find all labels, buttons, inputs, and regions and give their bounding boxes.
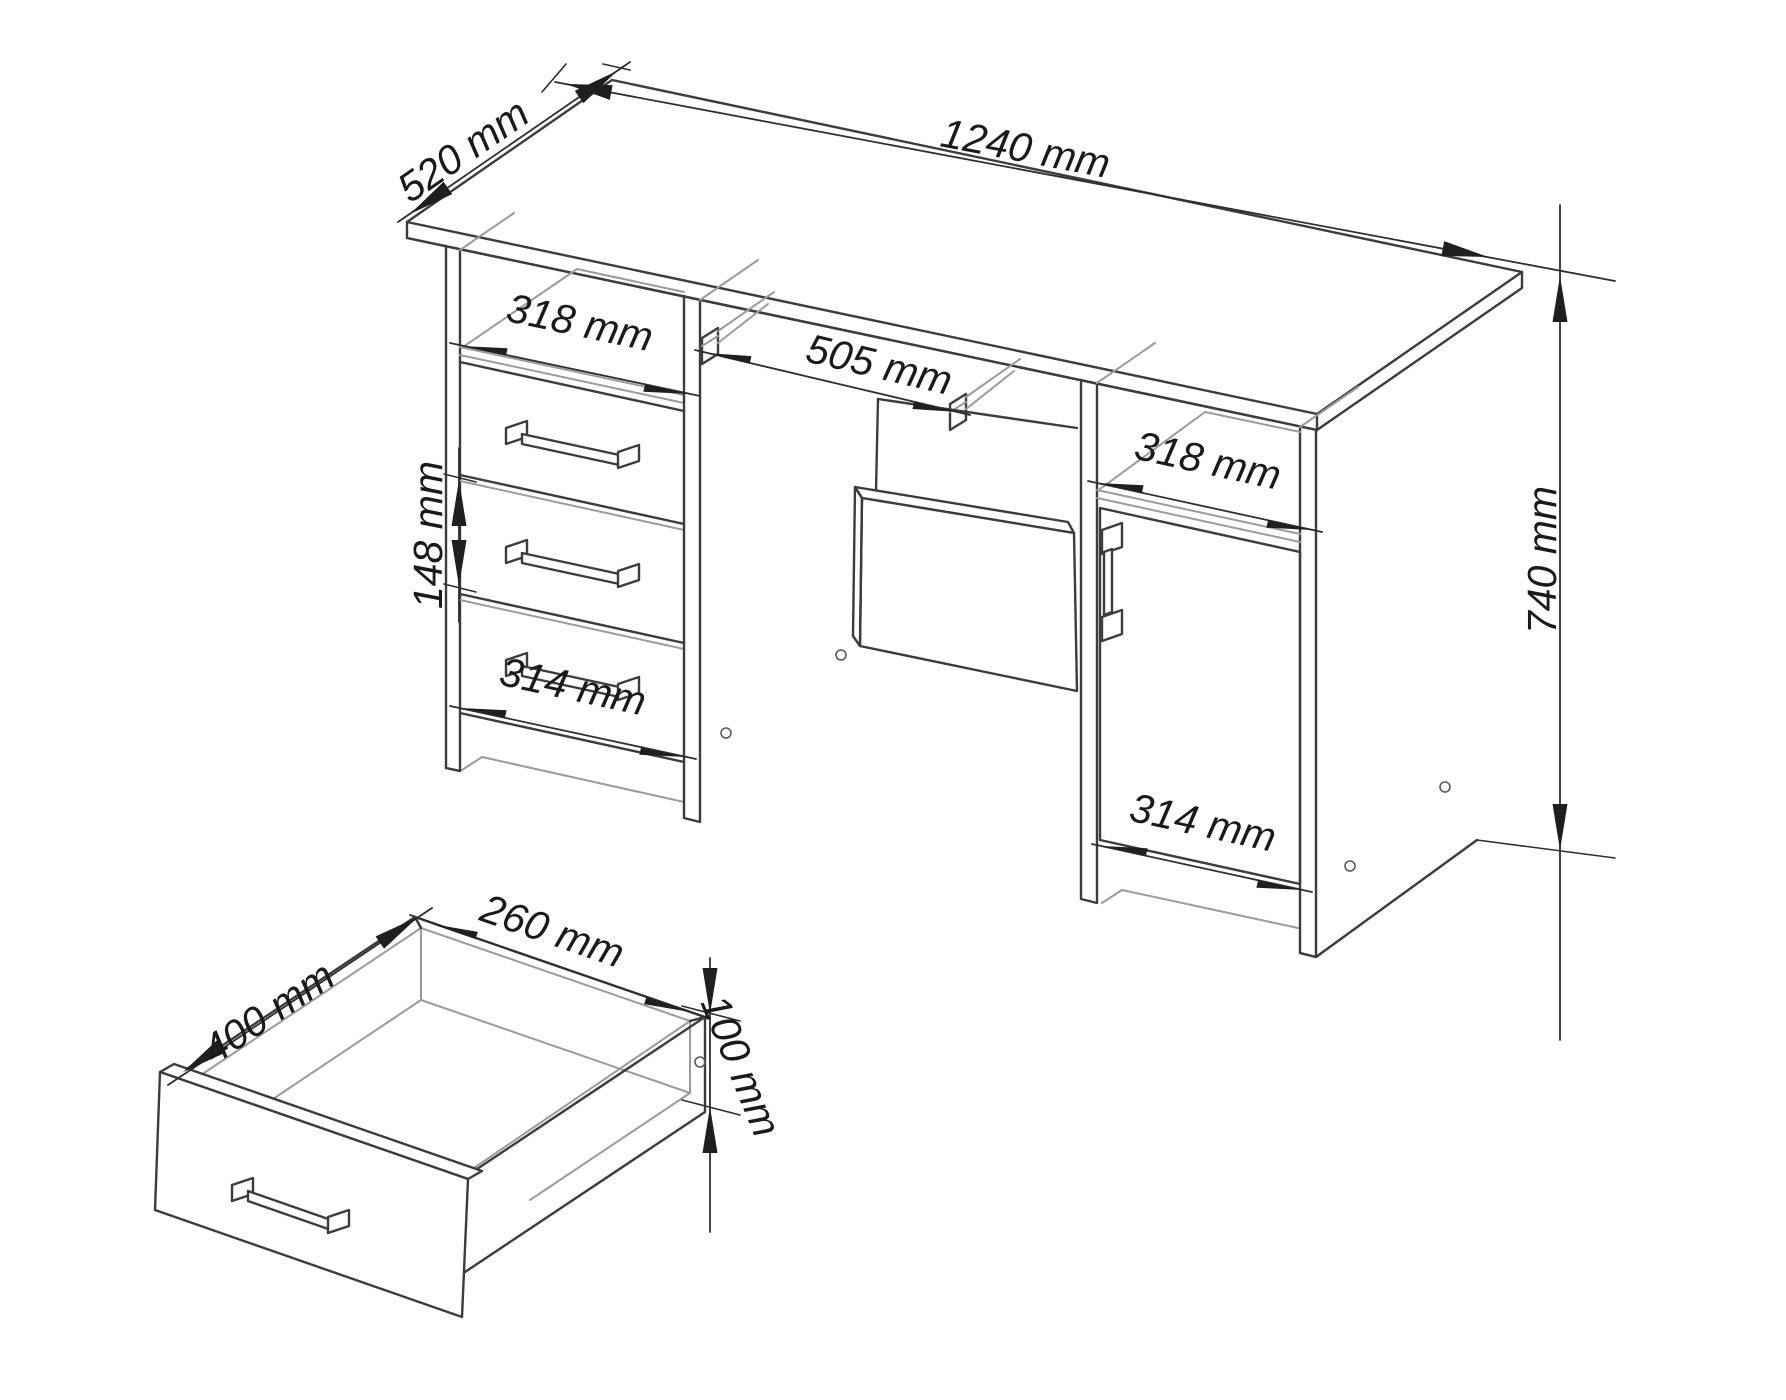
dimension-label-drawer-depth: 400 mm	[194, 952, 343, 1073]
dimension-label-left-niche-width: 318 mm	[503, 284, 657, 360]
drawer-handle	[506, 421, 639, 468]
dimension-label-desk-height: 740 mm	[1519, 486, 1565, 634]
drawer-front-panel	[155, 1064, 482, 1317]
drawer-handle	[506, 540, 639, 587]
dimension-desk-width: 1240 mm	[542, 64, 1615, 281]
door-handle	[1102, 523, 1122, 641]
dimension-label-right-door-width: 314 mm	[1126, 784, 1281, 860]
back-panel	[853, 399, 1077, 691]
desk-dimension-diagram: 520 mm 1240 mm 740 mm 318 mm 505 m	[0, 0, 1786, 1400]
dimension-drawer-height: 100 mm	[682, 958, 790, 1232]
screw-holes	[721, 650, 1450, 871]
drawer-detail-view: 400 mm 260 mm 100 mm	[155, 885, 790, 1317]
dimension-drawer-inner-width: 260 mm	[410, 885, 710, 1019]
technical-drawing-page: 520 mm 1240 mm 740 mm 318 mm 505 m	[0, 0, 1786, 1400]
dimension-label-desk-depth: 520 mm	[389, 89, 537, 211]
dimension-right-door-width: 314 mm	[1092, 784, 1312, 892]
dimension-label-right-niche-width: 318 mm	[1131, 422, 1286, 498]
right-plinth	[1102, 890, 1298, 928]
screw-hole	[695, 1057, 705, 1067]
dimension-label-desk-width: 1240 mm	[937, 110, 1114, 187]
dimension-label-drawer-front-height: 148 mm	[405, 461, 451, 609]
dimension-left-drawer-width: 314 mm	[450, 648, 696, 759]
dimension-drawer-depth: 400 mm	[168, 908, 432, 1085]
drawer-box	[155, 917, 705, 1317]
desk-view: 520 mm 1240 mm 740 mm 318 mm 505 m	[389, 62, 1615, 1040]
dimension-tray-width: 505 mm	[695, 325, 970, 415]
dimension-label-drawer-height: 100 mm	[692, 988, 790, 1143]
dimension-desk-height: 740 mm	[1477, 205, 1615, 1040]
left-plinth	[462, 757, 684, 802]
dimension-label-left-drawer-width: 314 mm	[496, 648, 650, 724]
dimension-label-drawer-inner-width: 260 mm	[474, 885, 630, 977]
dimension-right-niche-width: 318 mm	[1088, 422, 1322, 532]
